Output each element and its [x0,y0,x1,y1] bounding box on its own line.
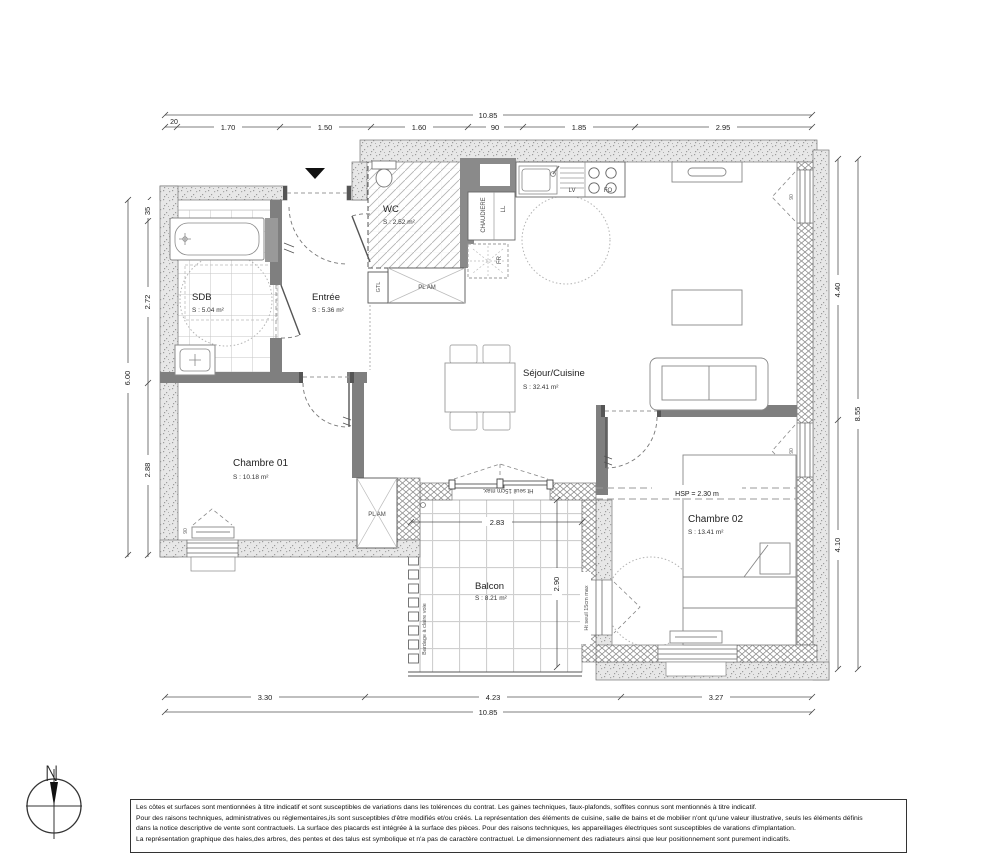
dim-top-seg: 1.85 [572,123,587,132]
dim-left-seg: 2.72 [143,295,152,310]
fridge-icon: FR [468,244,508,278]
disclaimer-line: La représentation graphique des haies,de… [136,835,901,846]
room-label-balcon: Balcon [475,581,504,592]
window-width-label: 90 [789,194,795,200]
chair-icon [483,345,510,363]
dining-table [445,345,515,430]
radiator-chambre2-icon [670,631,722,643]
wc-door [352,214,370,262]
dim-top-total: 10.85 [479,111,498,120]
radiator-chambre1-icon [192,527,234,538]
ht-seuil-right-label: Ht seuil 15cm max [584,585,590,630]
hsp-label: HSP = 2.30 m [675,491,719,498]
disclaimer-line: Pour des raisons techniques, administrat… [136,814,901,825]
chair-icon [450,412,477,430]
chair-icon [483,412,510,430]
window-width-label: 90 [183,528,189,534]
fo-label: FO [604,188,613,194]
balcony-sliding-door: Ht seuil 15cm max. [449,464,553,493]
dim-bottom-total: 10.85 [479,708,498,717]
dim-right-seg: 4.10 [833,538,842,553]
kitchen-counter: LV FO [516,162,625,197]
room-label-wc: WC [383,204,399,215]
disclaimer-line: Les côtes et surfaces sont mentionnées à… [136,803,901,814]
room-area-sdb: S : 5.04 m² [192,307,225,314]
dimension-bottom: 3.30 4.23 3.27 10.85 [162,692,815,717]
dim-top-wall: 20 [170,119,178,126]
dim-left-seg: 2.88 [143,463,152,478]
disclaimer-box: Les côtes et surfaces sont mentionnées à… [130,799,907,853]
chambre1-door [303,383,351,427]
gtl-label: GTL [376,282,382,293]
coffee-table-icon [672,290,742,325]
dim-left-total: 6.00 [123,371,132,386]
washbasin-icon [175,345,215,375]
room-label-chambre1: Chambre 01 [233,458,288,469]
dim-top-seg: 1.50 [318,123,333,132]
window-sejour-east: 90 [772,170,813,223]
fr-label: FR [497,255,503,264]
closet-entree: PL AM [388,268,465,303]
bed-chambre2-icon [683,455,796,645]
dim-top-seg: 90 [491,123,499,132]
turning-circle-kitchen [522,196,610,284]
room-area-balcon: S : 8.21 m² [475,595,508,602]
closet-chambre1: PL AM [357,478,397,548]
chair-icon [450,345,477,363]
room-area-entree: S : 5.36 m² [312,307,345,314]
dim-top-seg: 2.95 [716,123,731,132]
floor-plan-drawing: 90 90 90 [0,0,1000,857]
dim-bottom-seg: 3.30 [258,693,273,702]
dimension-left: 35 2.72 2.88 6.00 [123,197,153,558]
sdb-door [281,285,300,338]
dim-right-total: 8.55 [853,407,862,422]
dim-balcon-depth: 2.90 [552,577,561,592]
room-label-entree: Entrée [312,292,340,303]
room-label-sejour: Séjour/Cuisine [523,368,585,379]
dim-top-seg: 1.60 [412,123,427,132]
lv-label: LV [569,188,576,194]
sofa-icon [650,358,768,410]
radiator-sejour-icon [672,162,742,182]
bathtub-icon [170,218,264,260]
dim-bottom-seg: 4.23 [486,693,501,702]
ll-label: LL [501,205,507,212]
dim-bottom-seg: 3.27 [709,693,724,702]
window-width-label: 90 [789,448,795,454]
room-label-chambre2: Chambre 02 [688,514,743,525]
dim-top-seg: 1.70 [221,123,236,132]
room-area-chambre2: S : 13.41 m² [688,529,724,536]
compass: N [26,762,82,839]
kitchen-sink-icon [519,166,559,194]
chambre2-door [604,417,657,468]
compass-north-label: N [44,762,60,786]
room-label-sdb: SDB [192,292,212,303]
dim-left-seg: 35 [143,207,152,215]
table-icon [445,363,515,412]
dim-right-seg: 4.40 [833,283,842,298]
floor-plan-page: 90 90 90 [0,0,1000,857]
dimension-right: 4.40 4.10 8.55 [833,156,863,672]
chaudiere-label: CHAUDIERE [481,197,487,232]
entrance-door [284,168,347,264]
bardage-label: Bardage à claire voie [422,603,428,655]
plam-label: PL AM [368,512,385,518]
room-area-sejour: S : 32.41 m² [523,384,559,391]
gtl-box: GTL [368,272,388,303]
room-area-chambre1: S : 10.18 m² [233,474,269,481]
disclaimer-line: dans la notice descriptive de vente sont… [136,824,901,835]
boiler-closet: CHAUDIERE LL [468,192,515,240]
dim-balcon-width: 2.83 [490,518,505,527]
plam-label: PL AM [418,285,435,291]
ht-seuil-top-label: Ht seuil 15cm max. [482,487,533,493]
room-area-wc: S : 2.52 m² [383,219,416,226]
window-chambre1-south: 90 [183,509,238,571]
entrance-arrow-icon [305,168,325,179]
dimension-top: 10.85 20 1.70 1.50 1.60 90 1.85 2.95 [162,110,815,132]
